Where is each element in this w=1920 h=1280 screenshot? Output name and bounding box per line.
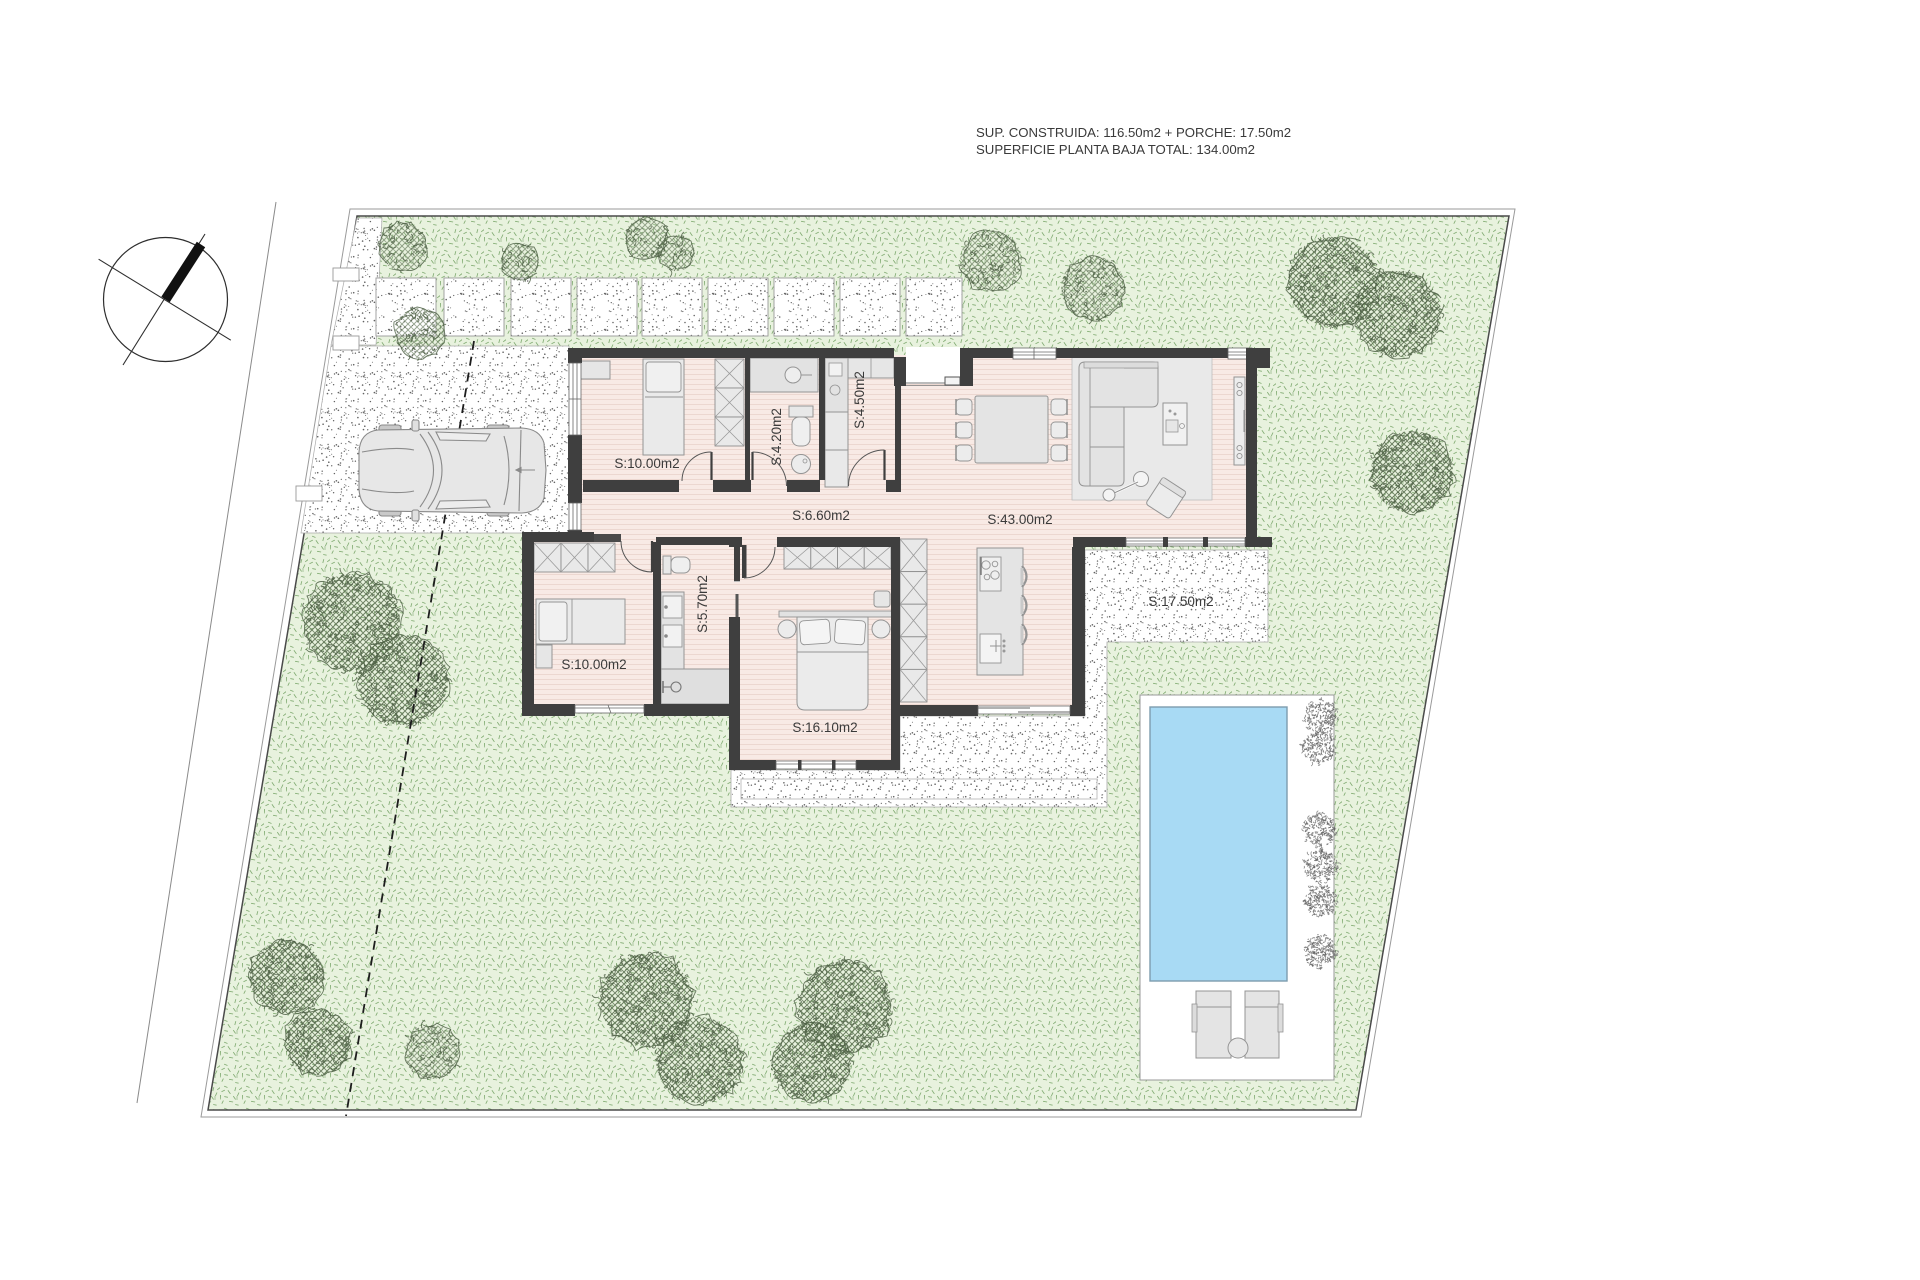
svg-text:S:4.20m2: S:4.20m2 bbox=[769, 408, 784, 466]
svg-text:S:16.10m2: S:16.10m2 bbox=[792, 720, 857, 735]
svg-text:SUP. CONSTRUIDA: 116.50m2 + PO: SUP. CONSTRUIDA: 116.50m2 + PORCHE: 17.5… bbox=[976, 125, 1291, 140]
svg-text:S:5.70m2: S:5.70m2 bbox=[695, 575, 710, 633]
svg-text:S:10.00m2: S:10.00m2 bbox=[614, 456, 679, 471]
svg-text:S:6.60m2: S:6.60m2 bbox=[792, 508, 850, 523]
svg-text:S:4.50m2: S:4.50m2 bbox=[852, 371, 867, 429]
svg-text:S:17.50m2: S:17.50m2 bbox=[1148, 594, 1213, 609]
svg-text:SUPERFICIE PLANTA BAJA TOTAL:: SUPERFICIE PLANTA BAJA TOTAL: 134.00m2 bbox=[976, 142, 1255, 157]
svg-text:S:43.00m2: S:43.00m2 bbox=[987, 512, 1052, 527]
svg-text:S:10.00m2: S:10.00m2 bbox=[561, 657, 626, 672]
